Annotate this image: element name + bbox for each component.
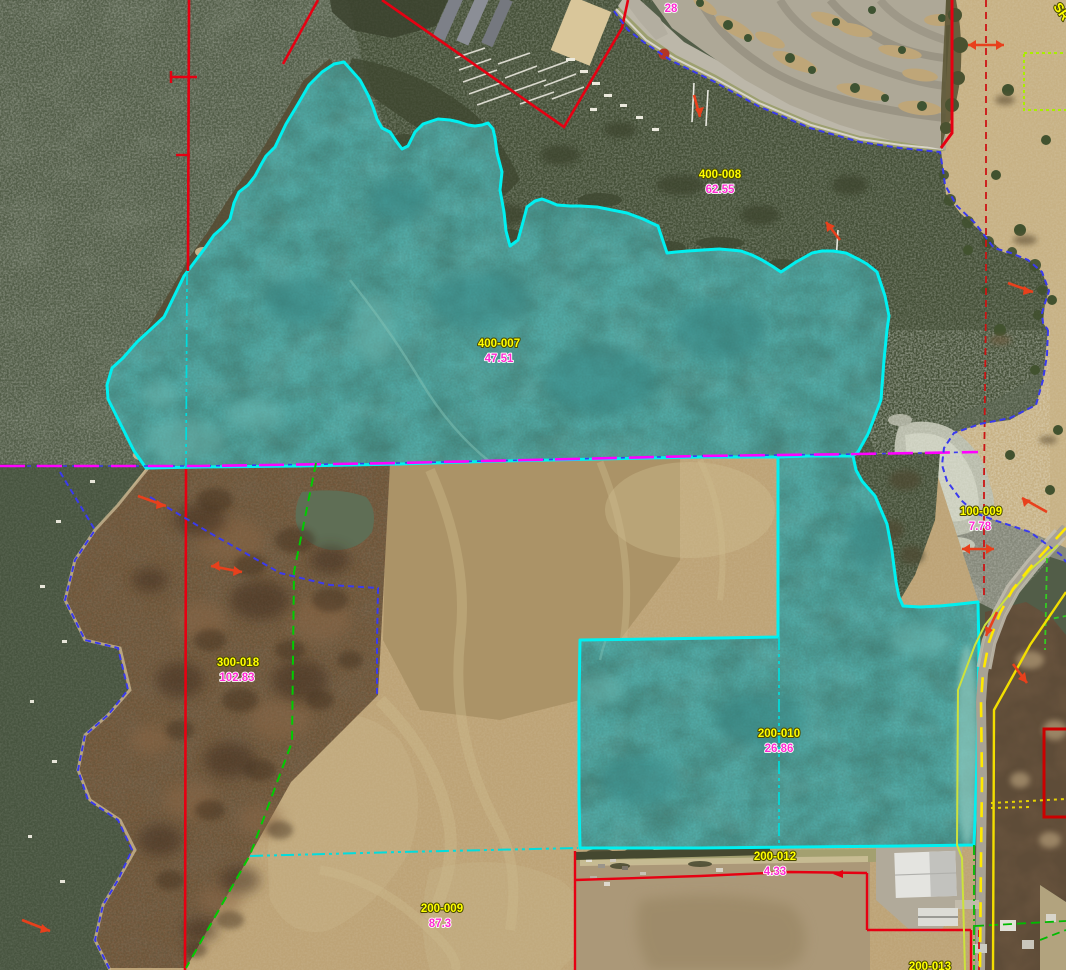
svg-text:200-009: 200-009: [421, 903, 463, 915]
svg-text:62.55: 62.55: [706, 184, 735, 196]
svg-text:200-013: 200-013: [909, 961, 951, 970]
svg-text:26.86: 26.86: [765, 743, 794, 755]
svg-text:200-010: 200-010: [758, 728, 800, 740]
svg-text:87.3: 87.3: [429, 918, 451, 930]
svg-text:4.33: 4.33: [764, 866, 786, 878]
svg-text:47.51: 47.51: [485, 353, 514, 365]
svg-text:300-018: 300-018: [217, 657, 260, 669]
svg-text:200-012: 200-012: [754, 851, 796, 863]
svg-text:100-009: 100-009: [960, 506, 1002, 518]
svg-text:7.78: 7.78: [969, 521, 992, 533]
svg-text:400-008: 400-008: [699, 169, 742, 181]
svg-text:400-007: 400-007: [478, 338, 520, 350]
svg-text:102.83: 102.83: [219, 672, 254, 684]
svg-text:28: 28: [665, 3, 678, 15]
